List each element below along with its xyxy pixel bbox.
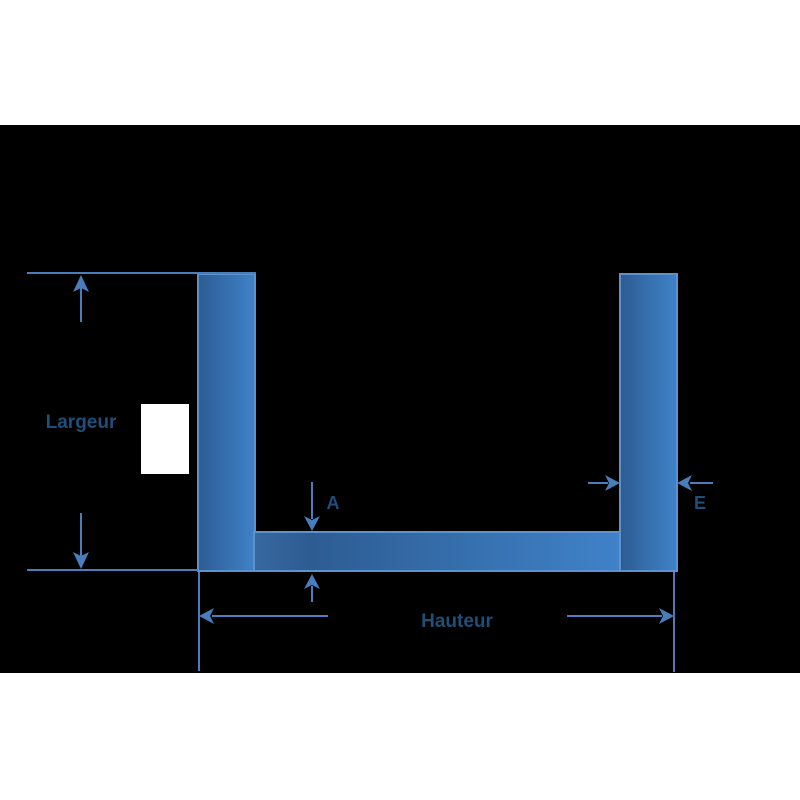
hauteur-label: Hauteur [421,611,493,632]
a-label: A [327,493,340,513]
largeur-label: Largeur [46,412,117,433]
bottom-web [254,532,620,571]
e-label: E [694,493,706,513]
left-flange [198,274,255,571]
right-flange [620,274,677,571]
white-cutout-box [141,404,189,474]
diagram-page: Largeur A E Hauteur [0,0,800,800]
diagram-canvas-band [0,125,800,673]
u-profile-diagram: Largeur A E Hauteur [0,0,800,800]
